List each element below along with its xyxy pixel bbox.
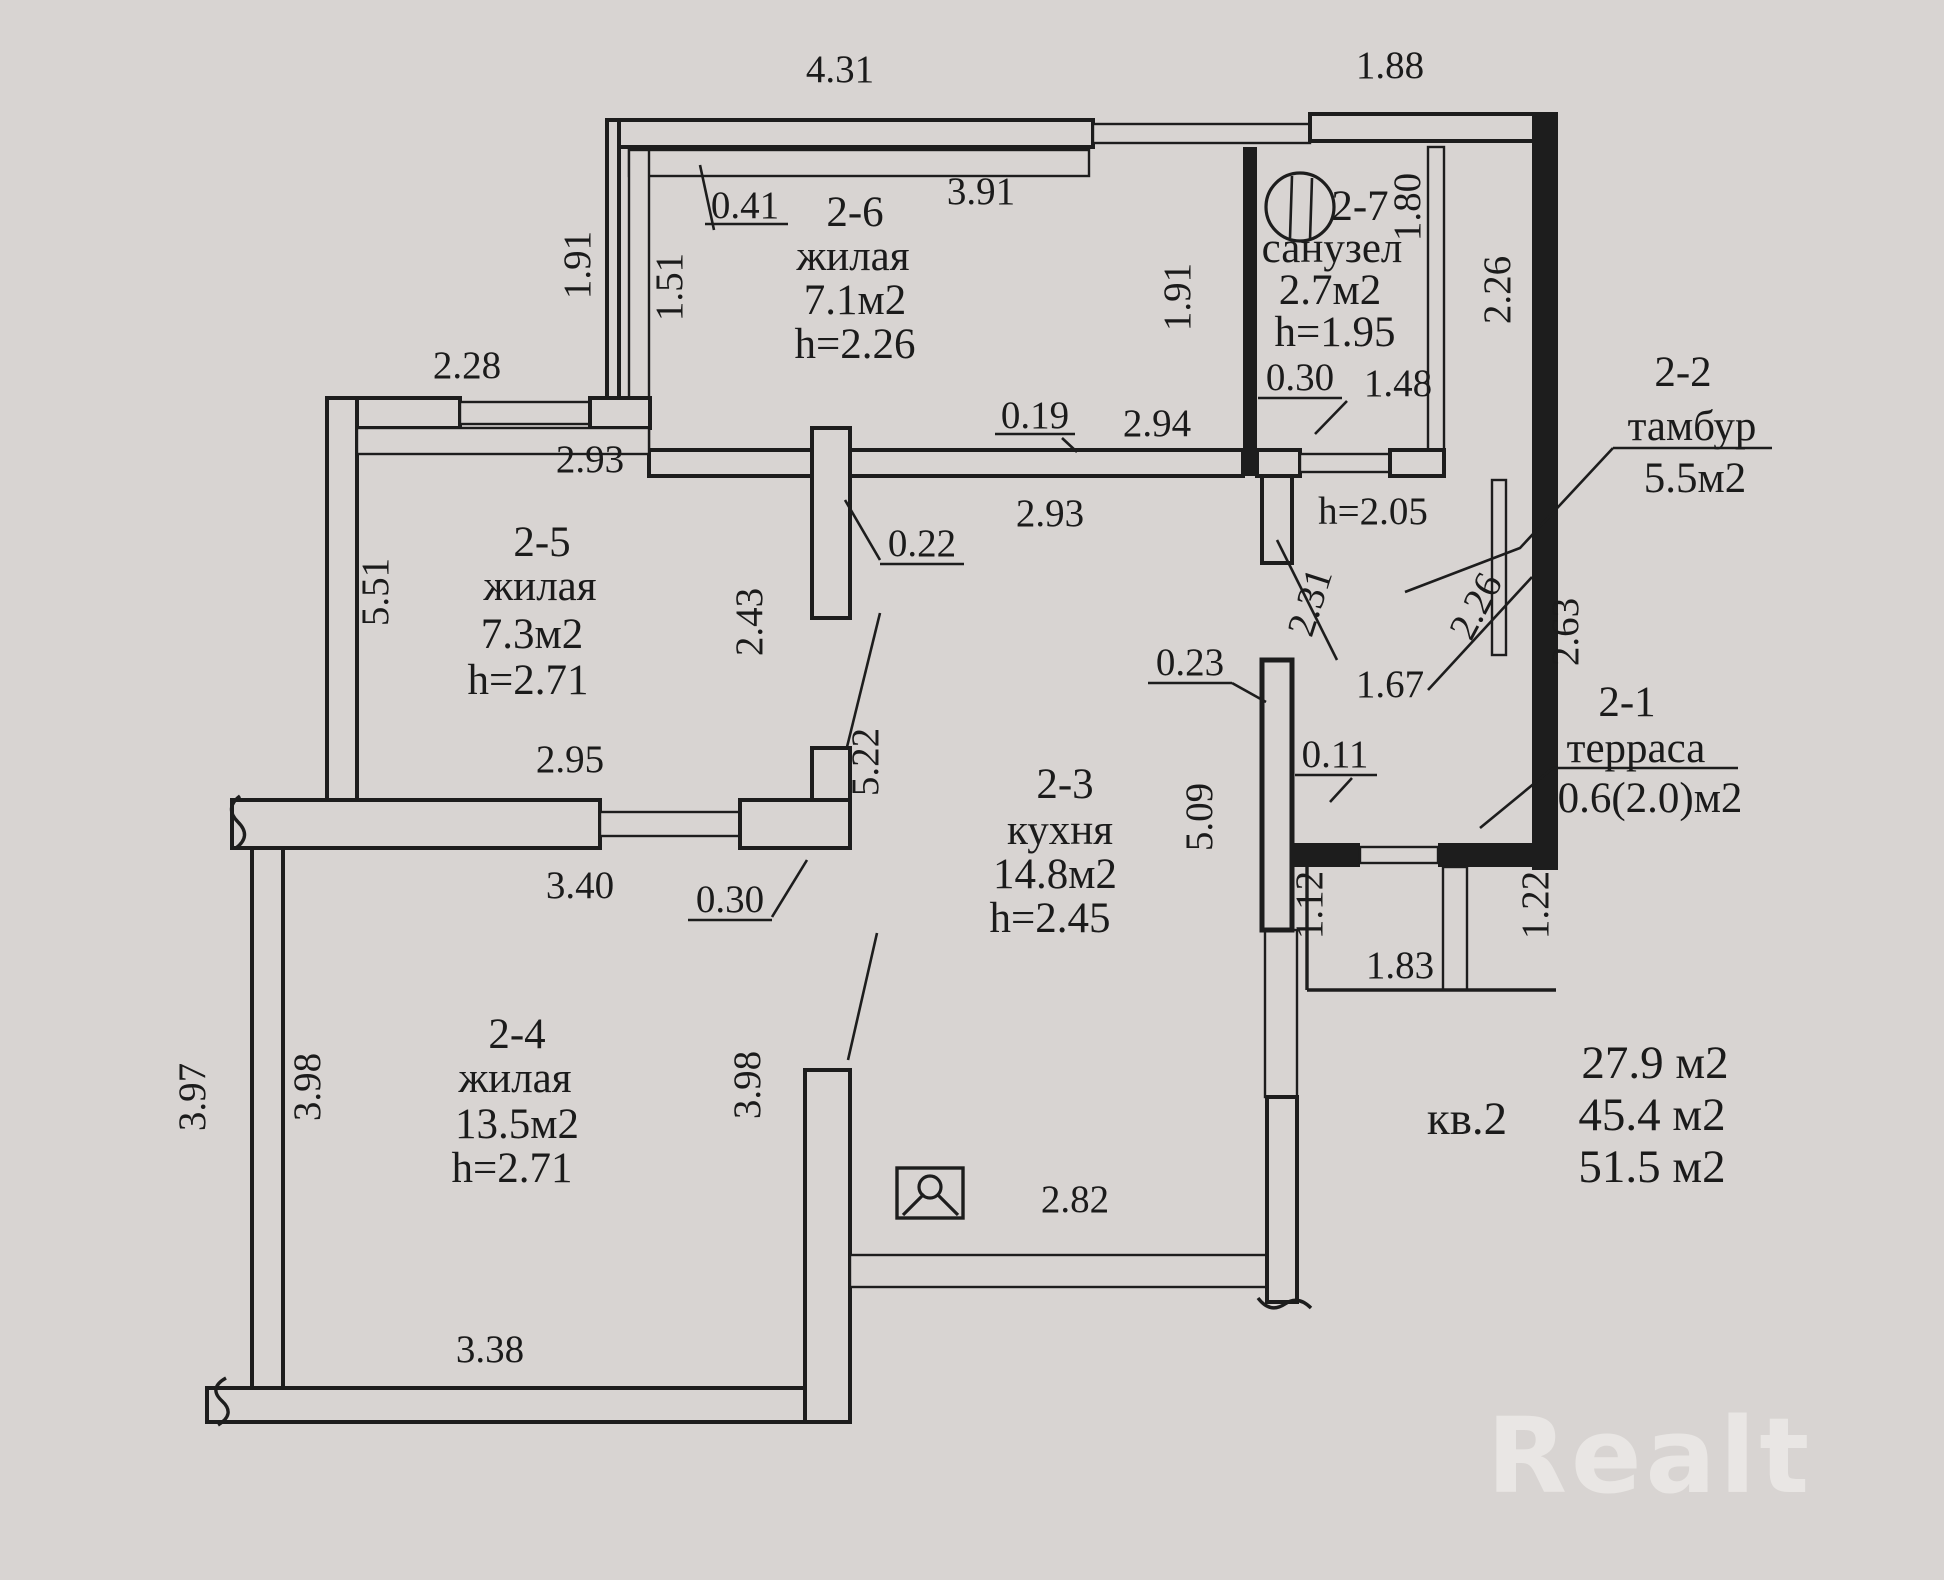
- door-opening: [1300, 454, 1390, 472]
- room-height: h=2.45: [989, 895, 1110, 942]
- summary-main-area: 45.4 м2: [1578, 1089, 1725, 1141]
- dim-room-width: 1.83: [1366, 944, 1434, 987]
- wall: [649, 450, 1243, 476]
- wall: [629, 150, 1089, 176]
- dim-room-width: 3.38: [456, 1328, 524, 1371]
- summary-unit: кв.2: [1427, 1093, 1507, 1145]
- wall: [1428, 147, 1444, 476]
- room-number: 2-2: [1654, 349, 1711, 396]
- dim-room-width: 2.93: [1016, 492, 1084, 535]
- dim-vertical: 1.51: [648, 253, 691, 321]
- wall: [1243, 147, 1257, 476]
- dim-room-width: 2.93: [556, 438, 624, 481]
- wall: [1293, 843, 1360, 867]
- dim-vertical: 1.91: [556, 231, 599, 299]
- door-opening: [460, 402, 590, 424]
- room-area: 7.3м2: [481, 611, 583, 658]
- wall: [327, 398, 357, 808]
- dim-top-width: 4.31: [806, 48, 874, 91]
- wall: [812, 428, 850, 618]
- dim-vertical: 1.12: [1288, 871, 1331, 939]
- door-opening: [1360, 847, 1438, 863]
- room-area: 2.7м2: [1279, 267, 1381, 314]
- room-height: h=2.71: [451, 1145, 572, 1192]
- wall: [740, 800, 850, 848]
- window-opening: [1443, 867, 1467, 990]
- room-area: 14.8м2: [993, 851, 1117, 898]
- dim-room-width: 1.67: [1356, 663, 1424, 706]
- room-type: жилая: [795, 233, 909, 280]
- room-number: 2-4: [488, 1011, 545, 1058]
- dim-height-note: h=2.05: [1318, 490, 1428, 533]
- room-type: терраса: [1567, 725, 1706, 772]
- dim-vertical: 3.97: [171, 1063, 214, 1131]
- room-height: h=1.95: [1274, 309, 1395, 356]
- wall: [590, 398, 650, 428]
- room-number: 2-1: [1598, 679, 1655, 726]
- dim-top-width: 1.88: [1356, 44, 1424, 87]
- summary-living-area: 27.9 м2: [1581, 1037, 1728, 1089]
- wall: [1257, 450, 1300, 476]
- room-height: h=2.26: [794, 321, 915, 368]
- dim-window: 2.82: [1041, 1178, 1109, 1221]
- room-type: жилая: [482, 563, 596, 610]
- wall: [1267, 1097, 1297, 1302]
- dim-vertical: 1.91: [1156, 263, 1199, 331]
- room-type: жилая: [457, 1055, 571, 1102]
- dim-room-width: 2.28: [433, 344, 501, 387]
- dim-vertical: 2.63: [1544, 598, 1587, 666]
- room-type: кухня: [1007, 807, 1113, 854]
- wall: [252, 848, 283, 1390]
- wall: [1390, 450, 1444, 476]
- dim-room-width: 3.40: [546, 864, 614, 907]
- dim-wall: 0.19: [1001, 394, 1069, 437]
- dim-wall: 0.30: [696, 878, 764, 921]
- dim-vertical: 2.26: [1476, 256, 1519, 324]
- dim-vertical: 5.51: [354, 558, 397, 626]
- dim-door: 0.30: [1266, 356, 1334, 399]
- room-area: 5.5м2: [1644, 455, 1746, 502]
- dim-wall: 0.22: [888, 522, 956, 565]
- dim-wall: 0.11: [1302, 733, 1369, 776]
- wall: [1492, 480, 1506, 655]
- wall: [805, 1070, 850, 1422]
- wall: [232, 800, 600, 848]
- dim-room-width: 2.94: [1123, 402, 1191, 445]
- room-type: санузел: [1262, 225, 1403, 272]
- wall: [607, 120, 619, 407]
- window-opening: [850, 1255, 1268, 1287]
- room-height: h=2.71: [467, 657, 588, 704]
- room-type: тамбур: [1628, 403, 1757, 450]
- dim-room-width: 2.95: [536, 738, 604, 781]
- dim-vertical: 1.22: [1514, 871, 1557, 939]
- dim-room-width: 3.91: [947, 170, 1015, 213]
- dim-vertical: 3.98: [286, 1053, 329, 1121]
- room-number: 2-5: [513, 519, 570, 566]
- dim-vertical: 5.09: [1178, 783, 1221, 851]
- wall: [1532, 114, 1558, 870]
- wall: [607, 120, 1093, 147]
- wall: [1438, 843, 1540, 867]
- dim-door: 1.48: [1364, 362, 1432, 405]
- dim-vertical: 3.98: [726, 1051, 769, 1119]
- window-opening: [1093, 124, 1310, 143]
- floor-plan-page: 4.31 1.88 0.41 3.91 1.91 1.51 1.91 1.80 …: [0, 0, 1944, 1580]
- summary-total-area: 51.5 м2: [1578, 1141, 1725, 1193]
- room-number: 2-7: [1331, 183, 1388, 230]
- window-opening: [1265, 930, 1297, 1097]
- room-area: 0.6(2.0)м2: [1558, 775, 1743, 822]
- realt-logo: Realt: [1487, 1395, 1813, 1517]
- room-number: 2-6: [826, 189, 883, 236]
- dim-wall: 0.23: [1156, 641, 1224, 684]
- room-area: 7.1м2: [804, 277, 906, 324]
- dim-vertical: 5.22: [844, 728, 887, 796]
- wall: [1310, 114, 1556, 141]
- room-area: 13.5м2: [455, 1101, 579, 1148]
- room-number: 2-3: [1036, 761, 1093, 808]
- dim-wall: 0.41: [711, 184, 779, 227]
- dim-vertical: 2.43: [728, 588, 771, 656]
- wall: [1262, 476, 1292, 563]
- wall: [207, 1388, 850, 1422]
- floor-plan-drawing: 4.31 1.88 0.41 3.91 1.91 1.51 1.91 1.80 …: [0, 0, 1944, 1580]
- door-opening: [600, 812, 740, 836]
